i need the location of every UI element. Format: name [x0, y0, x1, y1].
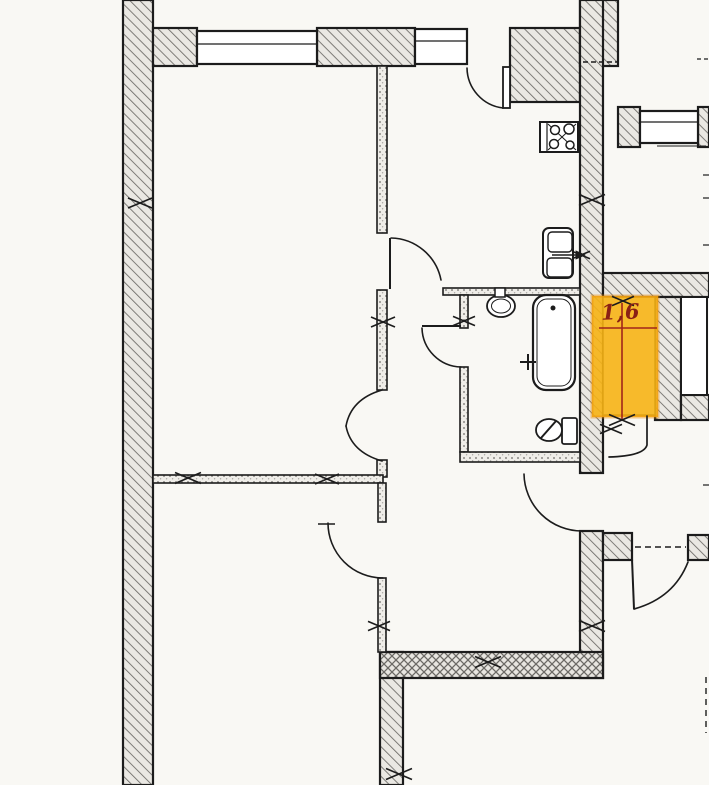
living-double-door-arc-top [346, 390, 382, 426]
bathroom-left-partition-a [460, 295, 468, 328]
lower-left-partition-b [378, 578, 386, 652]
stove-burner-1 [551, 126, 560, 135]
bathroom-bottom-partition [460, 452, 580, 462]
storage-wall-bottom-band [681, 395, 709, 420]
bathtub-drain [551, 306, 556, 311]
left-exterior-wall [123, 0, 153, 785]
stove-burner-3 [550, 140, 559, 149]
partition-left-mid [377, 290, 387, 390]
washbasin-tap [495, 288, 505, 297]
entry-wall-left-block [603, 533, 632, 560]
bathroom-door-arc [422, 328, 461, 367]
window-right-room [640, 111, 698, 143]
shaft-niche [681, 297, 707, 395]
entry-wall-right-block [688, 535, 709, 560]
living-double-door-arc-bottom [346, 426, 382, 461]
entry-door-arc [634, 562, 688, 609]
floor-plan: 1,6 [0, 0, 709, 785]
hallway-door-arc [524, 474, 582, 531]
floor-plan-canvas [0, 0, 709, 785]
kitchen-top-wall-block [510, 28, 580, 102]
bottom-thick-wall [380, 652, 603, 678]
lower-left-partition-a [378, 483, 386, 522]
kitchen-door-arc [391, 238, 441, 280]
bathroom-left-partition-b [460, 367, 468, 452]
window-kitchen [415, 29, 467, 64]
right-window-wall-b [698, 107, 709, 147]
toilet-tank [562, 418, 577, 444]
entry-door-leaf [632, 559, 634, 609]
stove-burner-2 [564, 124, 574, 134]
storage-highlight [592, 296, 658, 417]
window-living [197, 31, 317, 64]
balcony-door-arc [467, 68, 503, 108]
lower-room-door-arc [328, 523, 383, 578]
stove-burner-4 [566, 141, 574, 149]
balcony-door-leaf [503, 67, 510, 108]
top-wall-segment-b [317, 28, 415, 66]
right-window-wall-a [618, 107, 640, 147]
partition-left-upper [377, 66, 387, 233]
storage-wall-top-band [603, 273, 709, 297]
top-wall-segment-a [153, 28, 197, 66]
